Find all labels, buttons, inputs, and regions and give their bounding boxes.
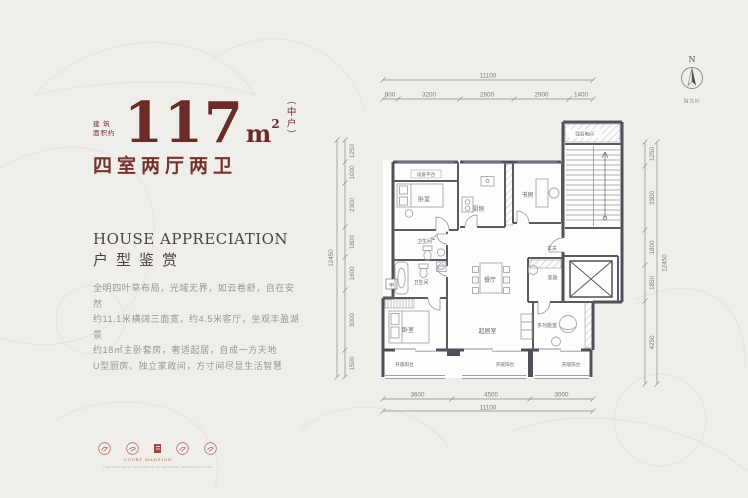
hero-prefix-line2: 面积约 [93, 129, 119, 138]
dim-left-4: 1600 [349, 266, 356, 281]
room-label-house: 家政 [547, 275, 557, 282]
hero-area-unit: m2 [246, 113, 280, 145]
hero-area-number: 117 [124, 101, 244, 145]
dim-bottom-total: 11100 [480, 405, 497, 412]
dim-bottom-2: 3000 [554, 392, 569, 399]
seal-caption-main: COURT MANSION [92, 458, 204, 462]
paragraph-line: 全明四叶草布局，光域无界，如云卷舒，自在安然 [93, 281, 303, 312]
dim-top-3: 2900 [534, 92, 549, 99]
room-label-kitchen: 厨房 [472, 205, 484, 213]
room-label-foyer: 玄关 [547, 245, 557, 252]
dim-bottom-1: 4500 [484, 392, 499, 399]
room-label-balcony2: 开敞阳台 [496, 361, 515, 368]
dim-left-2: 2300 [349, 198, 356, 213]
dim-left-5: 3000 [349, 313, 356, 328]
hero-area-sup: 2 [271, 117, 279, 131]
paragraph-line: 约11.1米横阔三面宽，约4.5米客厅，坐观丰盈湖景 [93, 312, 303, 343]
appreciation-paragraph: 全明四叶草布局，光域无界，如云卷舒，自在安然 约11.1米横阔三面宽，约4.5米… [93, 281, 303, 375]
seal-stamp-icon [154, 444, 161, 453]
seal-caption-sub: THE AESTHETIC RESIDENCE OF ORIENTAL HUMA… [103, 466, 193, 469]
hero-area: 建 筑 面积约 117 m2 （中户） [93, 99, 297, 145]
room-label-bedroom1: 卧室 [418, 196, 430, 204]
room-label-study: 书房 [521, 191, 533, 199]
seal-icon [126, 442, 139, 455]
appreciation-title-en: HOUSE APPRECIATION [93, 230, 288, 248]
hero-prefix-line1: 建 筑 [93, 120, 119, 129]
seal-icon [176, 442, 189, 455]
dim-top-4: 1400 [574, 92, 589, 99]
dim-right-3: 1850 [649, 276, 656, 291]
room-label-elec: 强弱电间 [575, 130, 594, 137]
hero-area-note: （中户） [283, 95, 297, 145]
room-label-bath2: 卫生间 [413, 279, 428, 286]
brand-seals [98, 442, 232, 455]
dim-right-4: 4250 [649, 335, 656, 350]
dim-top-2: 2800 [480, 92, 495, 99]
dim-right-total: 12450 [662, 254, 669, 272]
dim-top-1: 3200 [422, 92, 437, 99]
duct-label: 甲 [389, 283, 394, 289]
paragraph-line: 约18㎡主卧套房，奢适起居，自成一方天地 [93, 343, 303, 359]
room-label-balcony1: 开敞阳台 [395, 361, 414, 368]
room-label-multi: 多功能室 [537, 322, 557, 329]
room-label-bedroom2: 卧室 [402, 326, 414, 334]
paragraph-line: U型厨房、独立家政间，方寸间尽显生活智慧 [93, 359, 303, 375]
room-label-bath1: 卫生间 [417, 238, 432, 245]
seal-icon [98, 442, 111, 455]
room-label-dining: 餐厅 [484, 276, 496, 284]
dim-left-6: 1500 [349, 356, 356, 371]
dim-top-0: 800 [385, 92, 396, 99]
dim-left-0: 1250 [349, 144, 356, 159]
dim-left-1: 1000 [349, 165, 356, 180]
brochure-page: 建 筑 面积约 117 m2 （中户） 四室两厅两卫 HOUSE APPRECI… [0, 0, 748, 498]
dim-bottom-0: 3600 [410, 392, 425, 399]
hero-prefix: 建 筑 面积约 [93, 120, 119, 138]
dim-right-0: 1250 [649, 147, 656, 162]
seal-icon [204, 442, 217, 455]
dim-top-total: 11100 [480, 73, 497, 80]
dim-right-2: 1800 [649, 240, 656, 255]
layout-summary: 四室两厅两卫 [93, 151, 237, 178]
dim-right-1: 3300 [649, 191, 656, 206]
room-label-equip: 设备平台 [417, 171, 436, 178]
room-label-balcony3: 开敞阳台 [562, 361, 581, 368]
appreciation-title-cn: 户型鉴赏 [93, 249, 185, 270]
room-label-living: 起居室 [478, 327, 496, 335]
dim-left-3: 1800 [349, 235, 356, 250]
dim-left-total: 12450 [328, 249, 335, 267]
floorplan: 甲 强弱电间 [320, 55, 740, 425]
seal-captions: COURT MANSION THE AESTHETIC RESIDENCE OF… [58, 458, 238, 472]
